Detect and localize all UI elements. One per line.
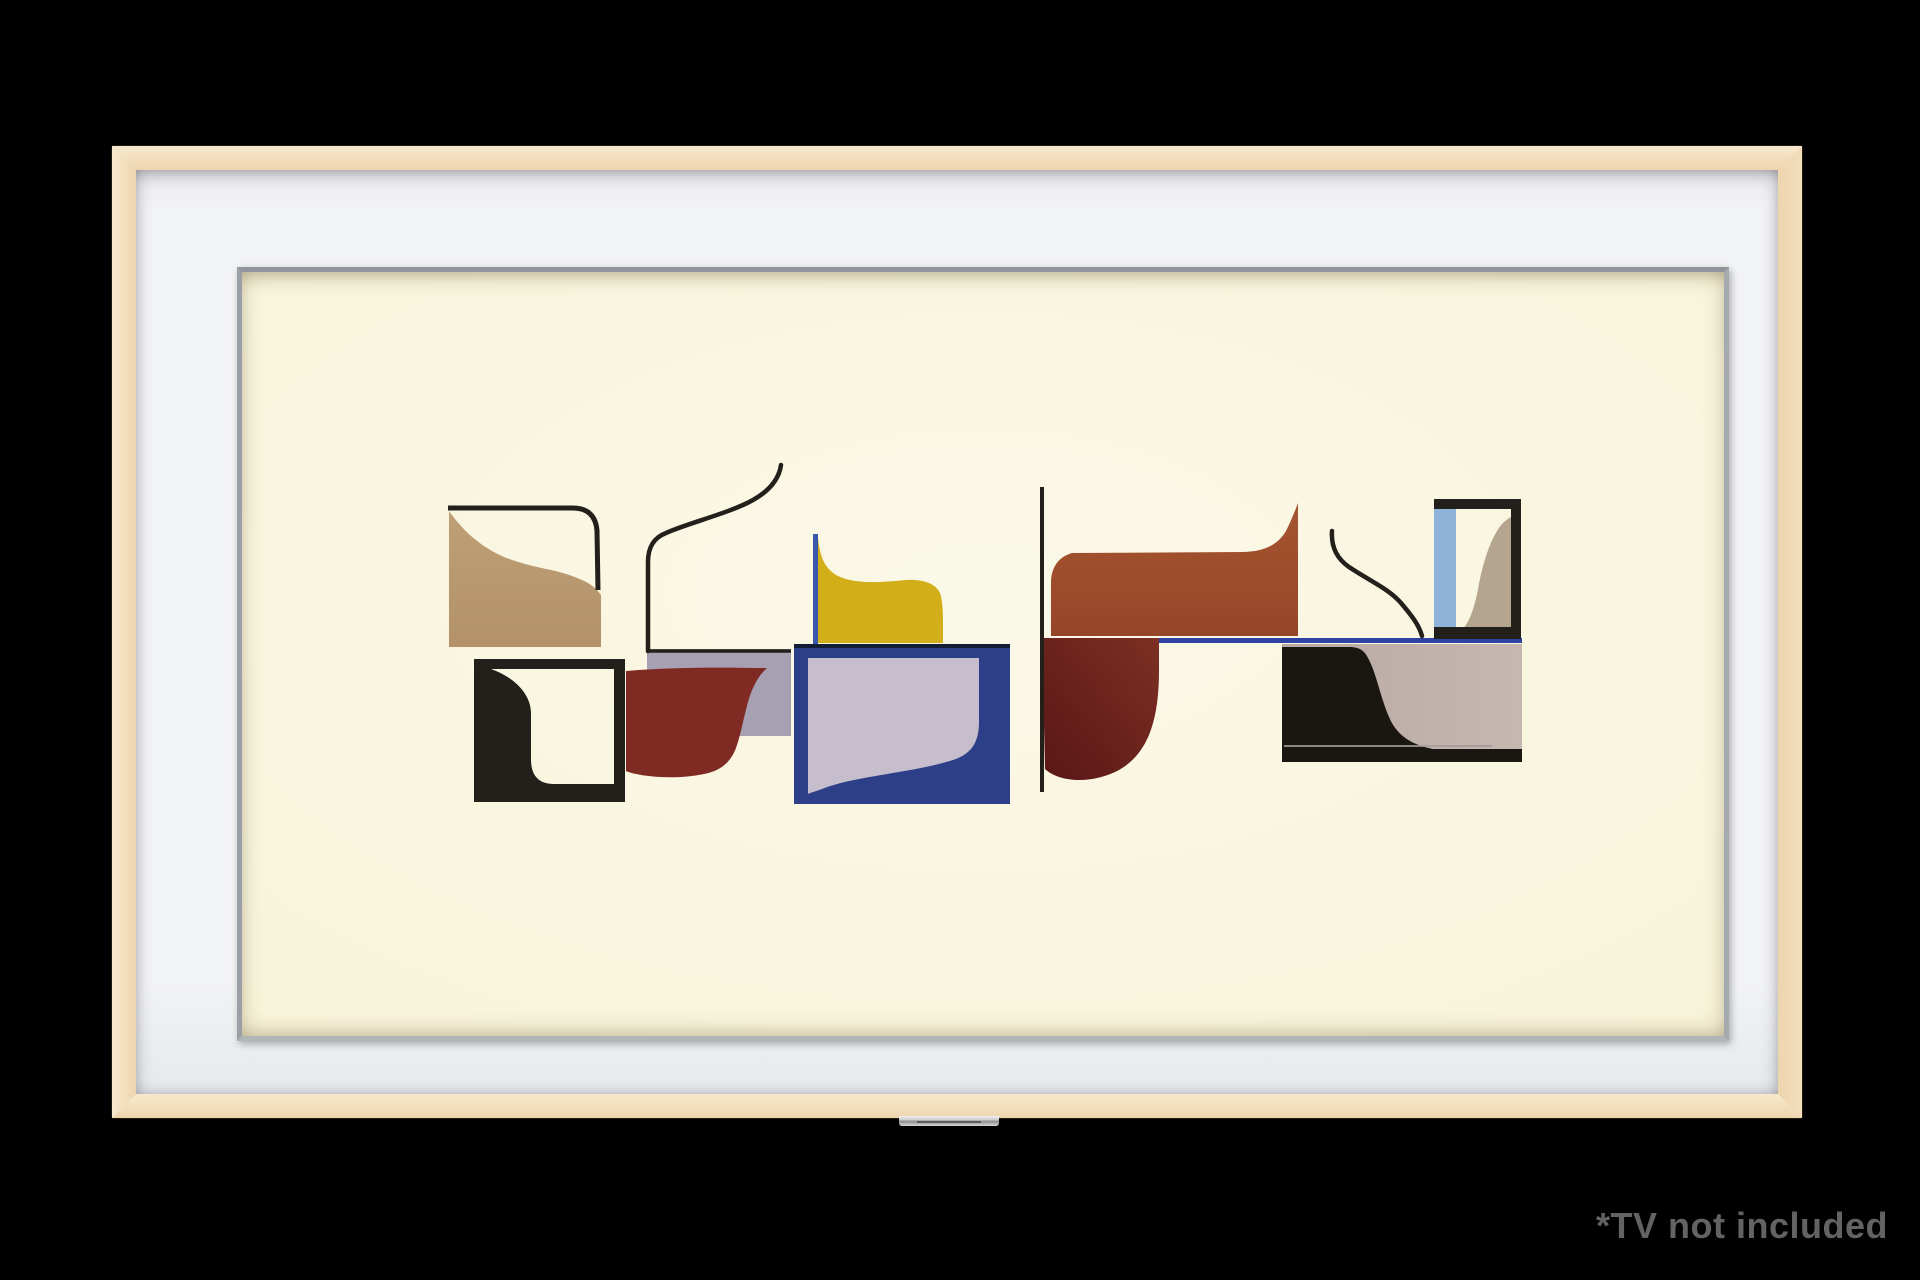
black-rect-bottom-bar [1434,627,1521,639]
sky-blue-band [1434,509,1456,629]
framed-tv [112,146,1802,1118]
black-bottom-bar [1282,749,1522,762]
black-open-square [474,659,625,802]
wall-mount-tab [899,1116,999,1126]
yellow-wave-shape [818,537,943,643]
wood-frame-top [112,146,1802,170]
wood-frame-right [1778,146,1802,1118]
wood-frame-left [112,146,136,1118]
white-matte [136,170,1778,1094]
black-rect-top-bar [1434,499,1521,509]
taupe-wave-shape [1463,517,1511,629]
rust-wave-shape [1051,503,1298,636]
page-background: { "disclaimer": { "text": "*TV not inclu… [0,0,1920,1280]
navy-frame-topline [794,644,1010,648]
black-rect-right-bar [1511,499,1521,639]
tan-wave-shape [449,511,601,647]
tall-s-curve-line [648,465,781,651]
abstract-artwork [242,272,1724,1036]
dark-maroon-blob [1042,638,1159,780]
blue-stripe [813,534,818,644]
wood-frame-bottom [112,1094,1802,1118]
tv-screen [237,267,1729,1041]
disclaimer-text: *TV not included [1596,1205,1888,1247]
small-s-curve-line [1332,531,1422,636]
artwork-canvas [242,272,1724,1036]
